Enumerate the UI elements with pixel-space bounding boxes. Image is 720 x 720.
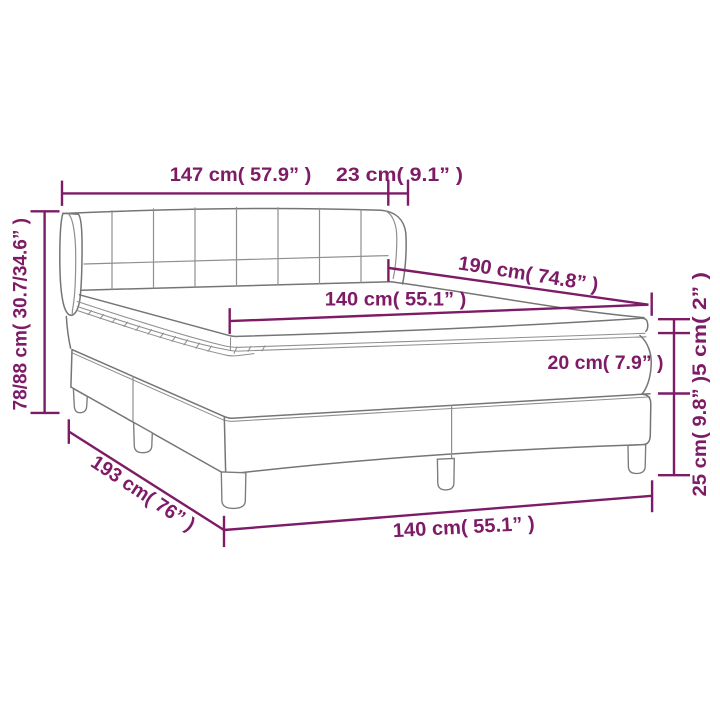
svg-text:5 cm( 2” ): 5 cm( 2” ) (689, 272, 711, 376)
svg-text:78/88 cm( 30.7/34.6” ): 78/88 cm( 30.7/34.6” ) (10, 218, 32, 411)
svg-text:25 cm( 9.8” ): 25 cm( 9.8” ) (689, 376, 711, 497)
svg-text:23 cm( 9.1” ): 23 cm( 9.1” ) (336, 164, 463, 186)
svg-text:140 cm( 55.1” ): 140 cm( 55.1” ) (325, 288, 467, 310)
svg-text:20 cm( 7.9” ): 20 cm( 7.9” ) (548, 352, 664, 374)
svg-text:147 cm( 57.9” ): 147 cm( 57.9” ) (170, 164, 312, 186)
